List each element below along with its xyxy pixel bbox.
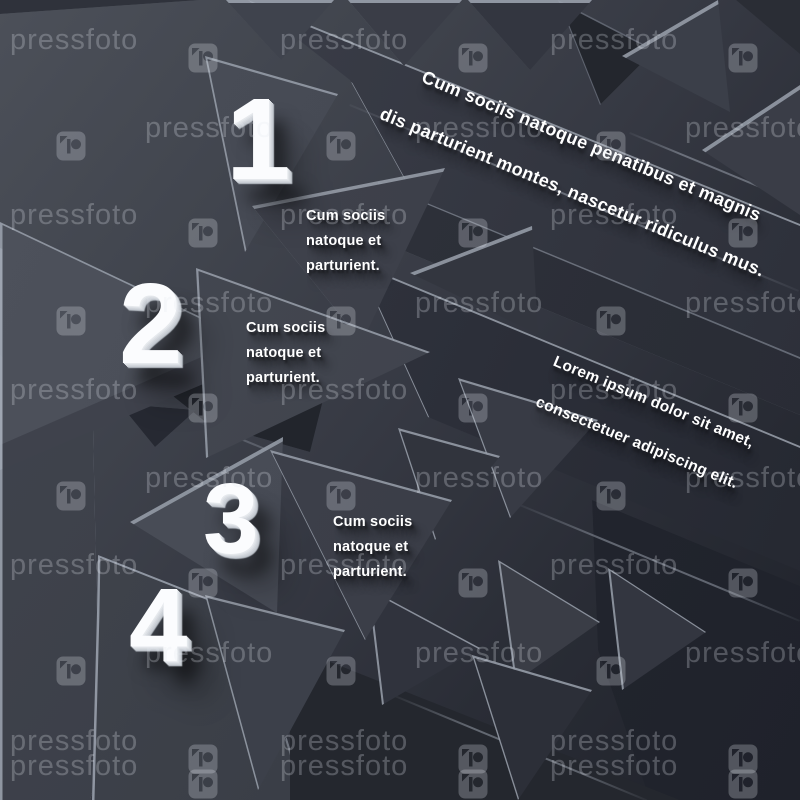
caption-line: parturient.	[246, 366, 325, 391]
step-number-3: 3	[203, 469, 257, 569]
caption-line: Cum sociis	[246, 316, 325, 341]
step-caption-1: Cum sociis natoque et parturient.	[306, 204, 385, 279]
step-number-1: 1	[226, 81, 289, 197]
caption-line: natoque et	[246, 341, 325, 366]
caption-line: parturient.	[306, 254, 385, 279]
caption-line: parturient.	[333, 560, 412, 585]
caption-line: natoque et	[333, 535, 412, 560]
caption-line: Cum sociis	[306, 204, 385, 229]
caption-line: natoque et	[306, 229, 385, 254]
infographic-canvas: 1 2 3 4 Cum sociis natoque et parturient…	[0, 0, 800, 800]
watermark-text: pressfoto	[10, 199, 138, 232]
step-caption-2: Cum sociis natoque et parturient.	[246, 316, 325, 391]
step-number-2: 2	[119, 268, 180, 382]
caption-line: Cum sociis	[333, 510, 412, 535]
watermark-text: pressfoto	[10, 24, 138, 57]
step-caption-3: Cum sociis natoque et parturient.	[333, 510, 412, 585]
step-number-4: 4	[129, 573, 185, 678]
